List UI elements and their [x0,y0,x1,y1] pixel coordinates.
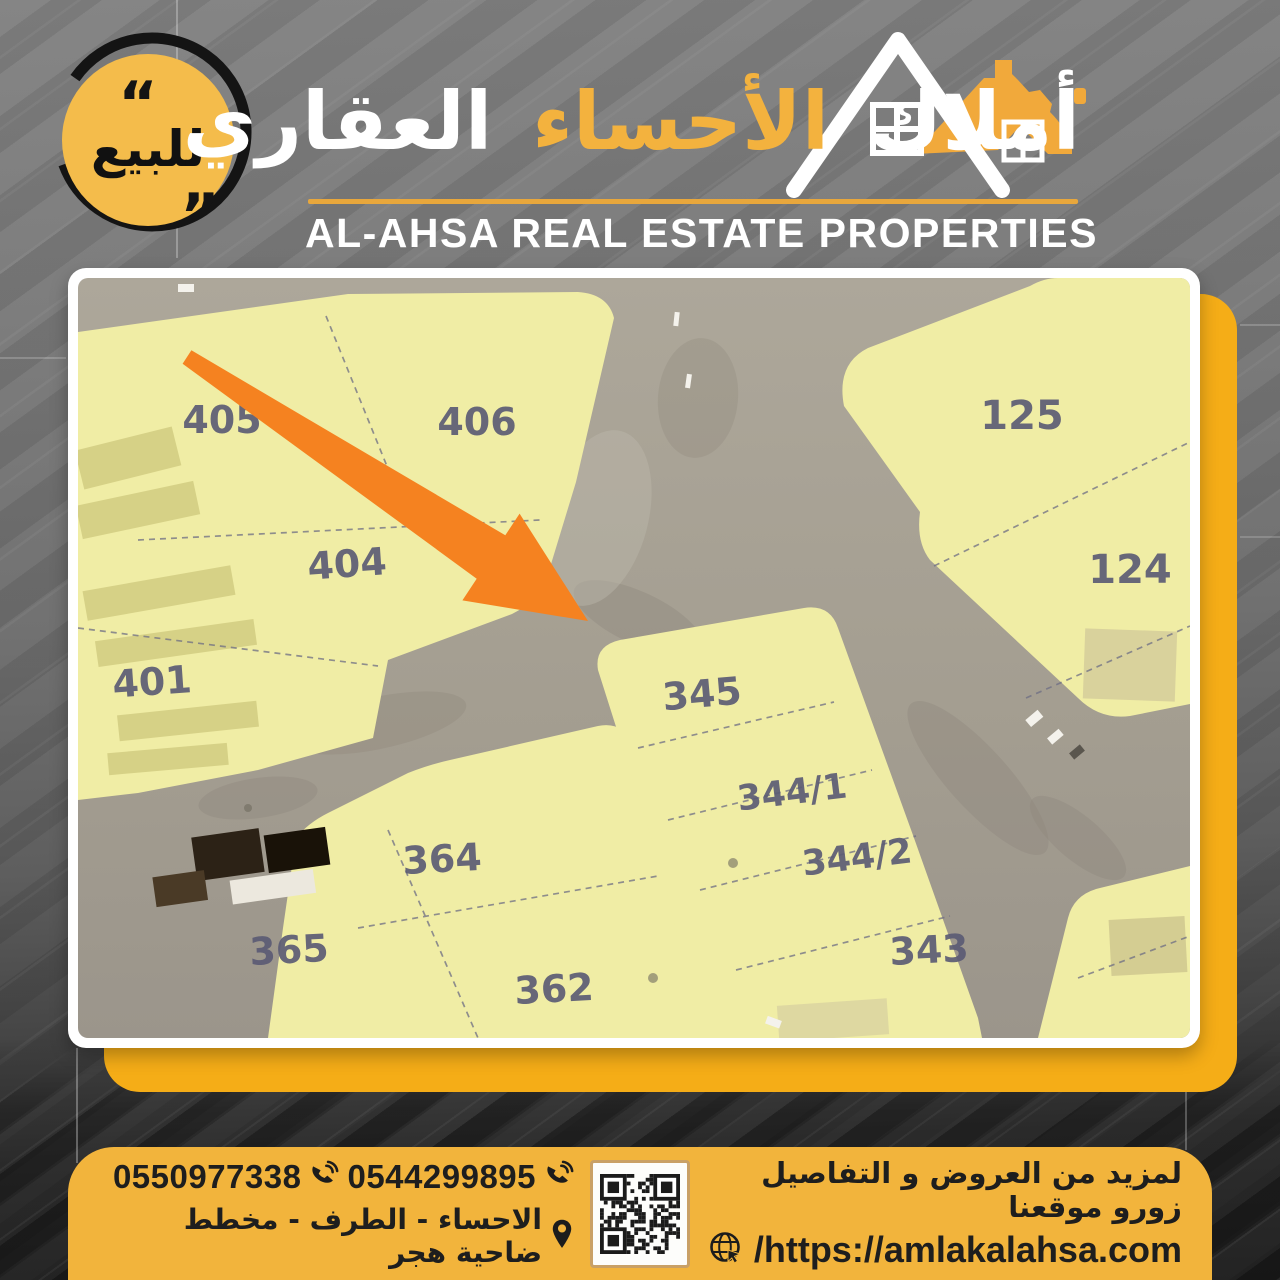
logo-english-name: AL-AHSA REAL ESTATE PROPERTIES [305,210,1081,257]
phone-secondary-group[interactable]: 0544299895 [347,1158,574,1196]
promo-text: لمزيد من العروض و التفاصيل زورو موقعنا [706,1156,1182,1224]
logo-arabic-name: أملاك الأحساء العقاري [300,78,1080,166]
flyer-canvas: “ للبيع ” [0,0,1280,1280]
phone-icon [309,1160,339,1194]
phone-secondary[interactable]: 0544299895 [347,1158,536,1196]
plot-label-345: 345 [661,669,744,720]
plot-label-343: 343 [888,926,970,974]
plot-label-406: 406 [437,400,516,444]
contact-right-section: لمزيد من العروض و التفاصيل زورو موقعنا /… [706,1156,1188,1271]
badge-quote-close-icon: ” [180,181,219,242]
plot-label-401: 401 [111,657,193,706]
logo-word-alahsa: الأحساء [532,75,829,168]
satellite-map: 405 406 125 404 124 401 345 344/1 344/2 … [78,278,1190,1038]
plot-label-365: 365 [248,926,330,974]
phone-primary[interactable]: 0550977338 [113,1158,302,1196]
website-url[interactable]: /https://amlakalahsa.com [754,1229,1182,1271]
phone-icon [544,1160,574,1194]
hairline-vertical-bottom-left [76,1048,78,1163]
hairline-horizontal-right-2 [1240,536,1280,538]
website-row[interactable]: /https://amlakalahsa.com [708,1229,1182,1271]
logo-divider [308,199,1078,204]
logo-word-alaqari: العقاري [183,75,493,168]
hairline-horizontal-right-1 [1240,324,1280,326]
location-pin-icon [550,1218,574,1254]
plot-label-362: 362 [513,965,595,1013]
logo-word-amlak: أملاك [869,75,1080,168]
contact-bar: 0550977338 0544299895 [68,1147,1212,1280]
globe-icon [708,1230,744,1270]
plot-label-364: 364 [401,835,483,883]
plot-label-404: 404 [306,539,388,588]
plot-label-125: 125 [980,393,1064,439]
contact-left-section: 0550977338 0544299895 [102,1158,574,1269]
qr-code[interactable] [590,1160,690,1268]
plot-label-124: 124 [1088,547,1172,593]
phone-primary-group[interactable]: 0550977338 [113,1158,340,1196]
location-text: الاحساء - الطرف - مخطط ضاحية هجر [102,1203,542,1269]
hairline-horizontal-left [0,357,66,359]
map-frame: 405 406 125 404 124 401 345 344/1 344/2 … [68,268,1200,1048]
